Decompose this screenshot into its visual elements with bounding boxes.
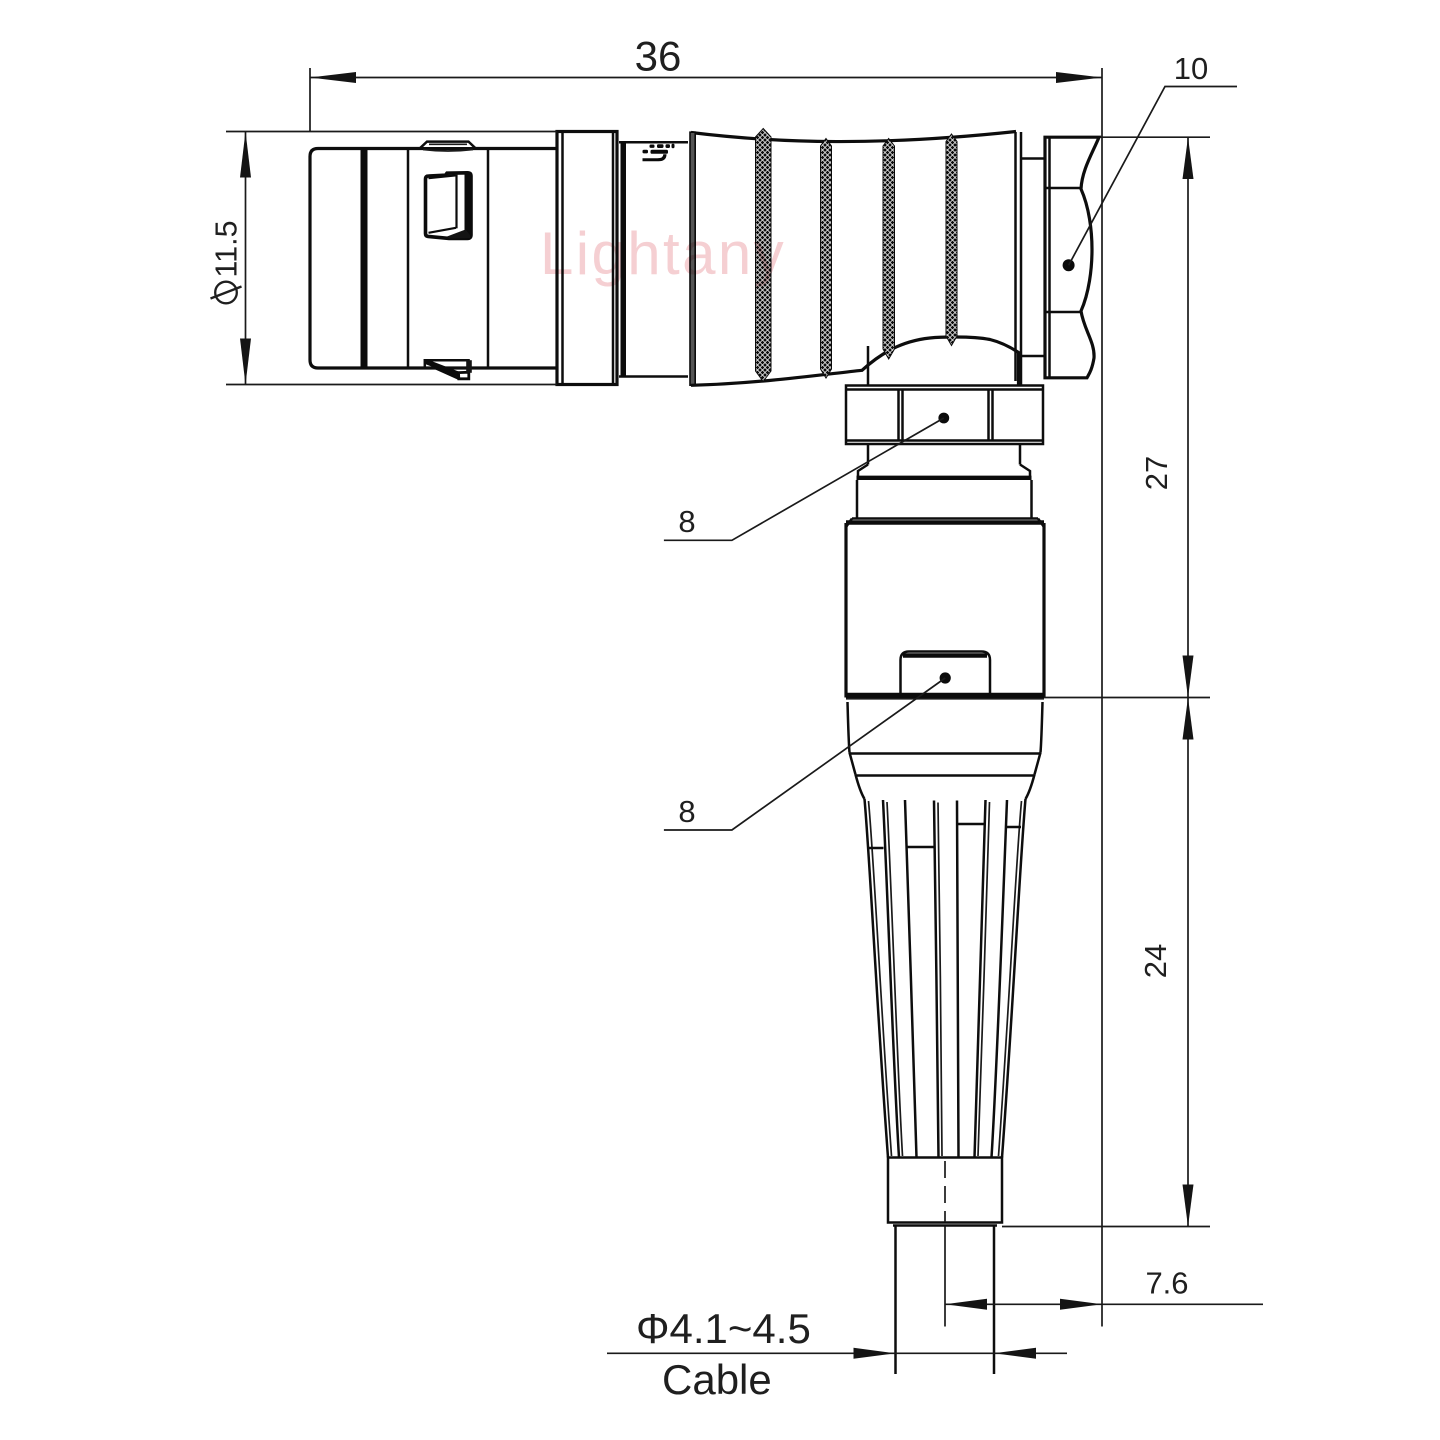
svg-text:8: 8 <box>678 794 695 829</box>
svg-text:11.5: 11.5 <box>210 220 244 277</box>
svg-text:10: 10 <box>1174 51 1208 86</box>
svg-text:24: 24 <box>1138 944 1173 978</box>
svg-text:8: 8 <box>678 504 695 539</box>
svg-text:27: 27 <box>1139 456 1174 490</box>
svg-text:Lightany: Lightany <box>540 220 786 287</box>
svg-text:36: 36 <box>635 33 682 80</box>
svg-text:Cable: Cable <box>662 1356 772 1403</box>
svg-text:7.6: 7.6 <box>1145 1266 1188 1301</box>
svg-text:Φ4.1~4.5: Φ4.1~4.5 <box>636 1305 811 1352</box>
